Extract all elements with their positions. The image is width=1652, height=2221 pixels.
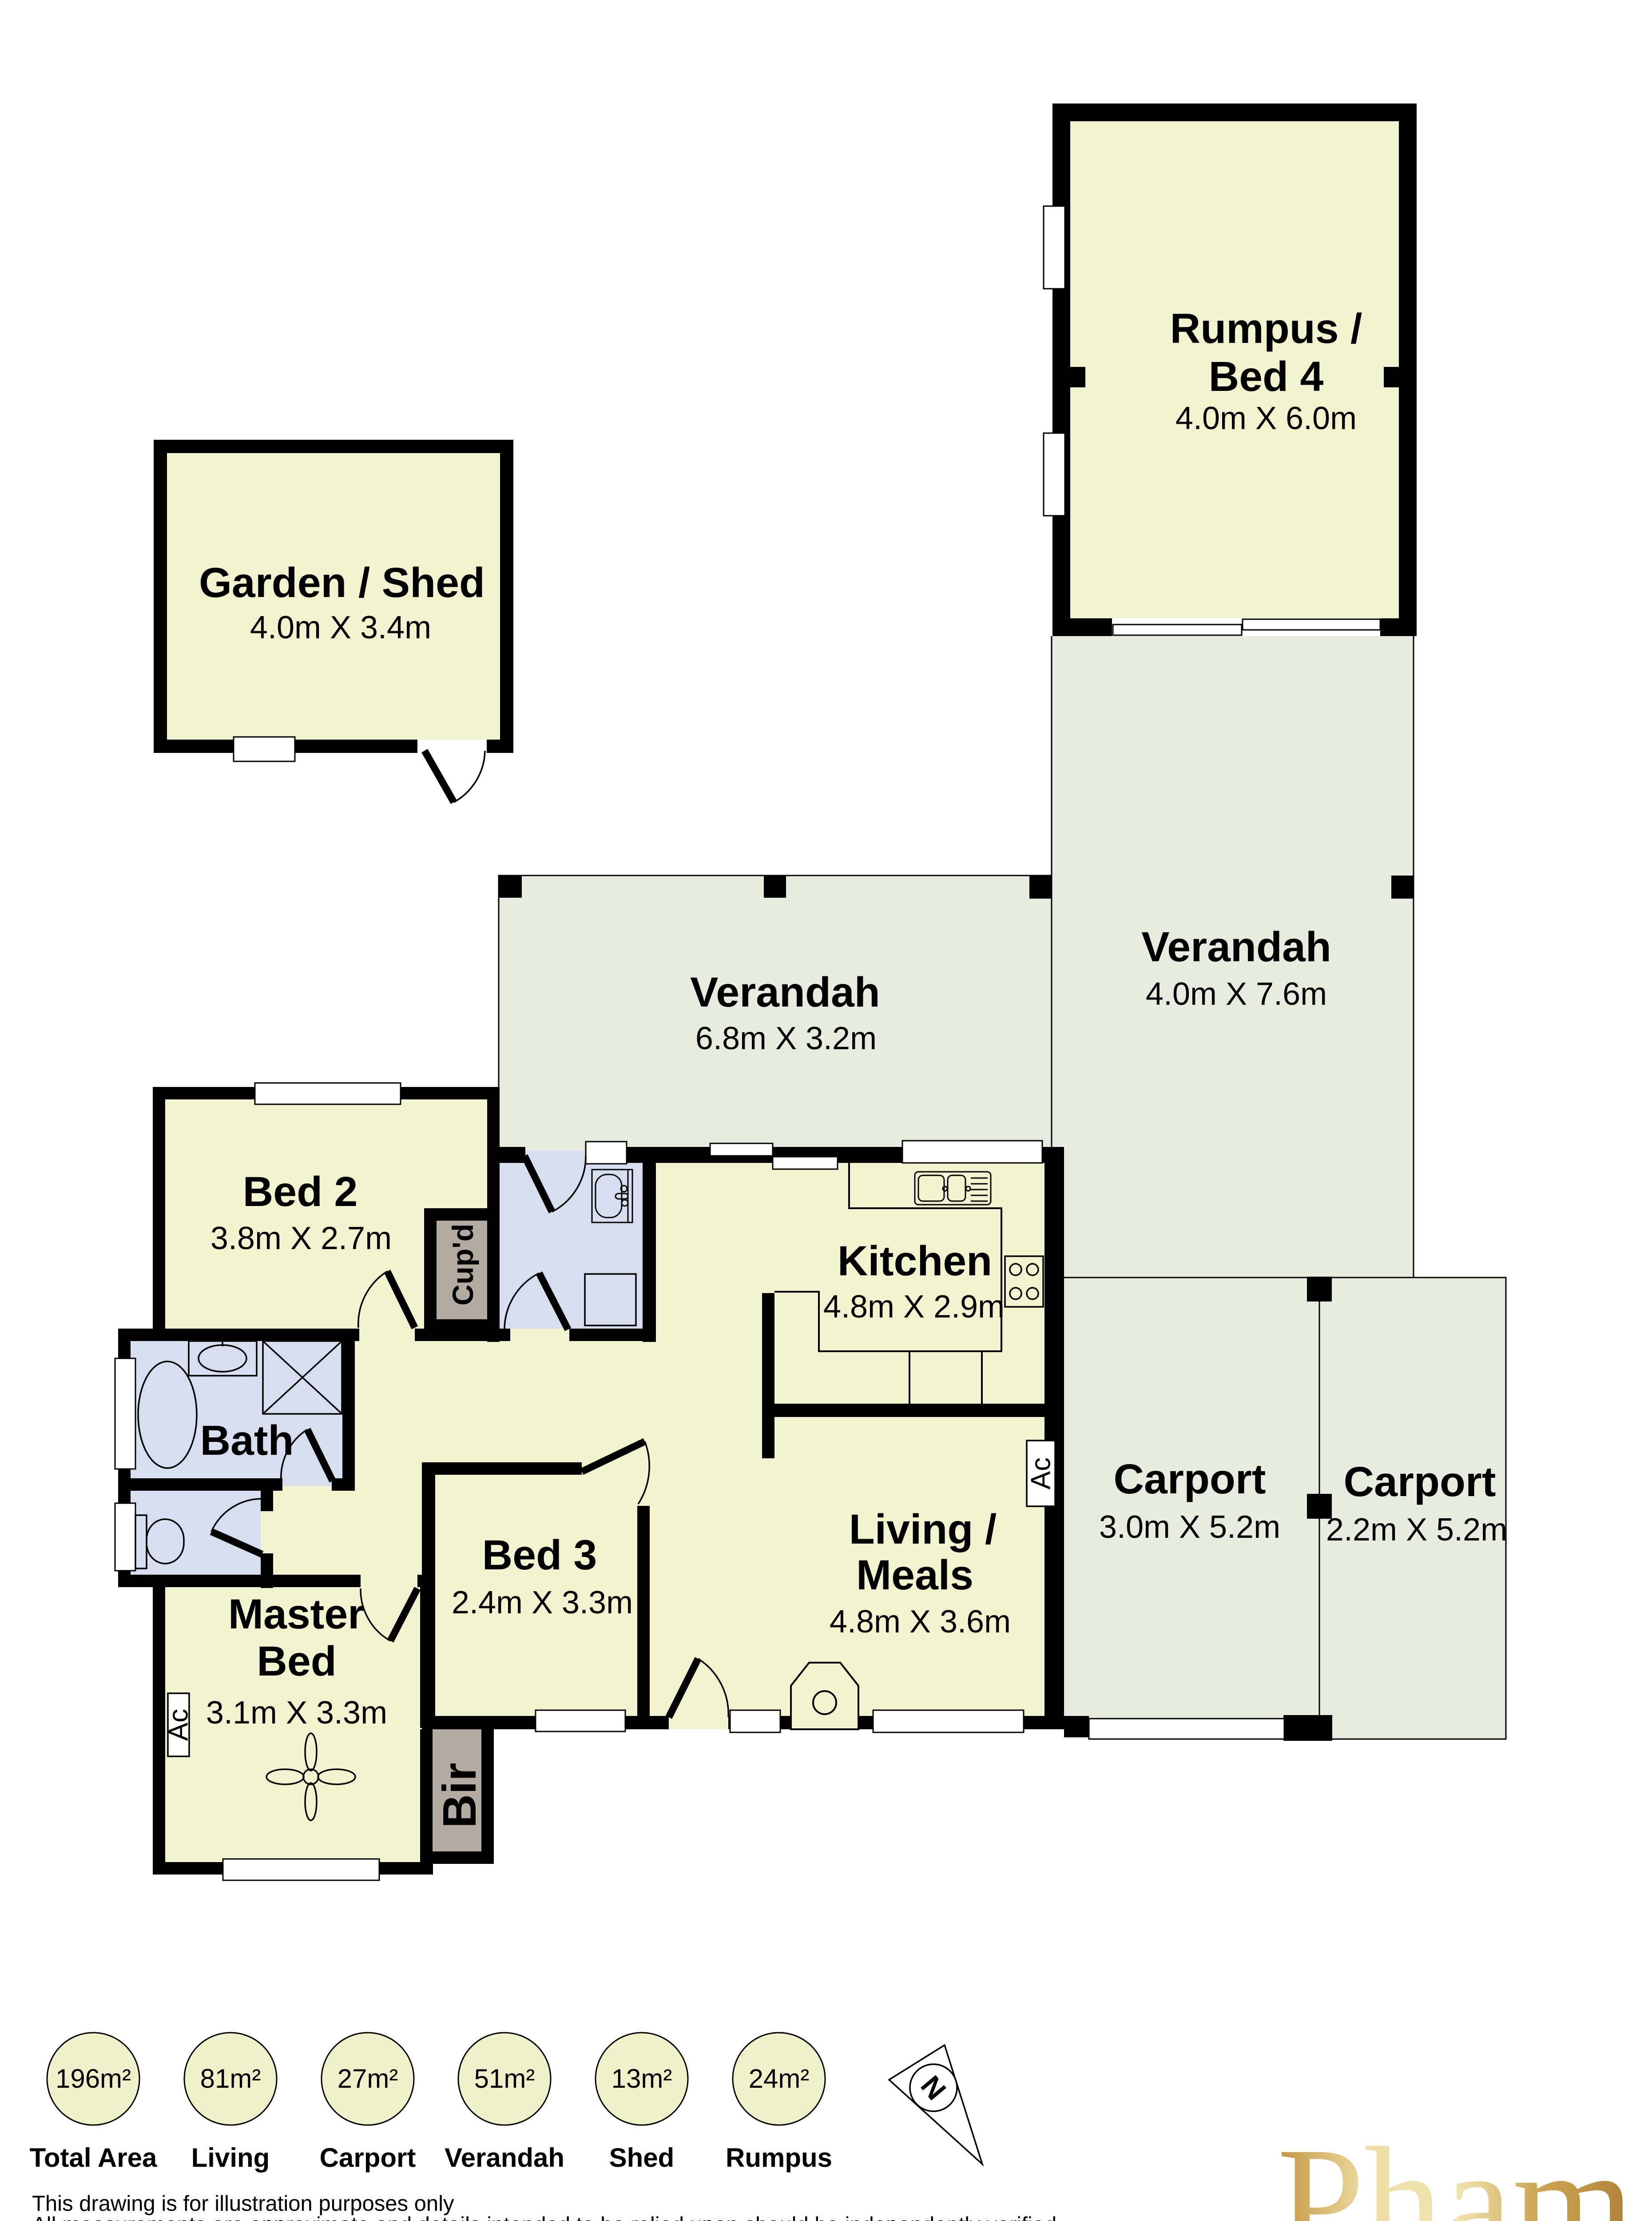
svg-text:2.2m X 5.2m: 2.2m X 5.2m [1326, 1512, 1507, 1548]
svg-text:Shed: Shed [609, 2143, 675, 2173]
svg-text:Master: Master [228, 1591, 364, 1638]
svg-text:Ac: Ac [1026, 1457, 1056, 1489]
svg-text:Living: Living [191, 2143, 270, 2173]
svg-text:Bir: Bir [433, 1763, 486, 1828]
svg-text:Total Area: Total Area [30, 2143, 157, 2173]
svg-text:Bed 2: Bed 2 [243, 1168, 358, 1215]
svg-text:Ac: Ac [163, 1709, 194, 1741]
svg-text:4.0m X 6.0m: 4.0m X 6.0m [1175, 401, 1357, 436]
svg-text:3.8m X 2.7m: 3.8m X 2.7m [210, 1221, 392, 1256]
svg-text:Garden / Shed: Garden / Shed [199, 559, 485, 606]
svg-text:3.0m X 5.2m: 3.0m X 5.2m [1099, 1509, 1280, 1545]
svg-text:Carport: Carport [1343, 1458, 1496, 1505]
svg-text:4.8m X 3.6m: 4.8m X 3.6m [830, 1604, 1011, 1640]
svg-text:196m²: 196m² [56, 2064, 131, 2094]
svg-text:4.0m X 3.4m: 4.0m X 3.4m [250, 610, 431, 645]
svg-text:27m²: 27m² [338, 2064, 398, 2094]
svg-text:3.1m X 3.3m: 3.1m X 3.3m [206, 1695, 387, 1731]
svg-text:81m²: 81m² [200, 2064, 261, 2094]
svg-text:Carport: Carport [320, 2143, 416, 2173]
svg-text:Bed 3: Bed 3 [482, 1532, 597, 1579]
svg-text:Cup'd: Cup'd [446, 1224, 479, 1306]
svg-text:This drawing is for illustrati: This drawing is for illustration purpose… [32, 2192, 454, 2216]
svg-text:Rumpus /: Rumpus / [1170, 305, 1362, 352]
svg-text:Kitchen: Kitchen [838, 1238, 992, 1285]
svg-text:Rumpus: Rumpus [726, 2143, 832, 2173]
svg-text:Carport: Carport [1113, 1456, 1266, 1503]
svg-text:Verandah: Verandah [445, 2143, 564, 2173]
svg-text:Pham: Pham [1277, 2115, 1634, 2221]
svg-text:6.8m X 3.2m: 6.8m X 3.2m [695, 1021, 877, 1056]
svg-text:All measurements are approxima: All measurements are approximate and det… [32, 2213, 1056, 2221]
svg-text:13m²: 13m² [612, 2064, 672, 2094]
svg-text:Bed 4: Bed 4 [1209, 353, 1324, 400]
svg-text:Bath: Bath [200, 1417, 294, 1464]
svg-text:24m²: 24m² [749, 2064, 810, 2094]
svg-text:2.4m X 3.3m: 2.4m X 3.3m [452, 1585, 633, 1620]
svg-text:Verandah: Verandah [690, 969, 880, 1016]
svg-text:Meals: Meals [856, 1552, 973, 1599]
svg-text:4.8m X 2.9m: 4.8m X 2.9m [823, 1289, 1005, 1325]
svg-text:Bed: Bed [257, 1638, 336, 1685]
svg-text:Verandah: Verandah [1141, 923, 1331, 971]
svg-text:4.0m X 7.6m: 4.0m X 7.6m [1146, 976, 1327, 1012]
svg-text:Living /: Living / [849, 1506, 997, 1553]
svg-text:51m²: 51m² [474, 2064, 535, 2094]
